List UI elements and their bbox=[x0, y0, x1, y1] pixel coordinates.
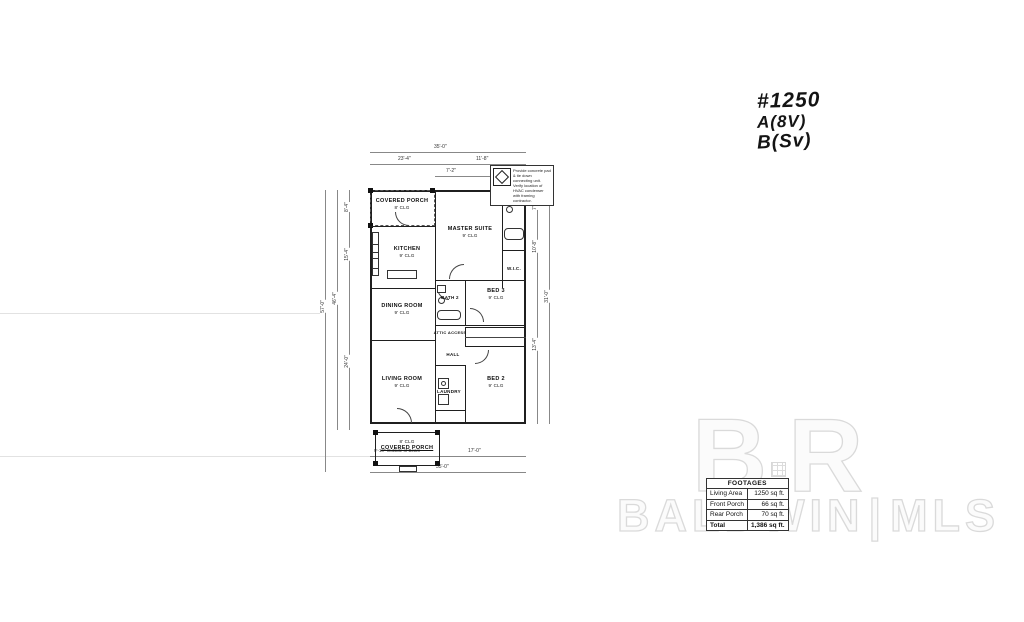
room-label-covered-porch-front: COVERED PORCH 8' CLG bbox=[372, 198, 432, 211]
room-ceiling: 9' CLG bbox=[373, 383, 431, 389]
dim-label: 24'-0" bbox=[344, 355, 351, 368]
dim-label: 46'-4" bbox=[332, 292, 339, 305]
room-name: ATTIC ACCESS bbox=[434, 330, 467, 335]
kitchen-island bbox=[387, 270, 417, 279]
room-label-bath-2: BATH 2 bbox=[436, 295, 464, 301]
porch-post bbox=[373, 430, 378, 435]
kitchen-sink-symbol bbox=[372, 244, 379, 253]
room-label-attic-access: ATTIC ACCESS bbox=[433, 330, 467, 335]
toilet-symbol bbox=[506, 206, 513, 213]
room-name: LIVING ROOM bbox=[382, 376, 422, 382]
room-label-bed-3: BED 3 9' CLG bbox=[472, 288, 520, 301]
room-ceiling: 9' CLG bbox=[472, 295, 520, 301]
room-label-master-suite: MASTER SUITE 9' CLG bbox=[441, 226, 499, 239]
hvac-note-box: Provide concrete pad & tie down connecti… bbox=[490, 165, 554, 206]
footage-value: 1,386 sq ft. bbox=[747, 520, 788, 530]
interior-wall bbox=[435, 280, 526, 281]
room-name: HALL bbox=[446, 352, 459, 357]
room-ceiling: 9' CLG bbox=[473, 383, 519, 389]
scanned-floor-plan-page: #1250 A(8V) B(Sv) 35'-0" 23'-4" 11'-8" 7… bbox=[0, 0, 1024, 622]
scan-artifact-line bbox=[0, 313, 320, 314]
footage-value: 1250 sq ft. bbox=[747, 489, 788, 499]
dimension-line bbox=[370, 472, 526, 473]
interior-wall bbox=[465, 280, 466, 325]
dimension-line bbox=[349, 190, 350, 430]
dim-label: 10'-8" bbox=[532, 240, 539, 253]
room-label-laundry: LAUNDRY bbox=[434, 389, 464, 395]
room-name: BED 2 bbox=[487, 376, 505, 382]
interior-wall bbox=[465, 365, 466, 424]
dimension-line bbox=[549, 190, 550, 424]
dim-label: 7'-2" bbox=[445, 169, 457, 174]
dim-label: 15'-4" bbox=[344, 248, 351, 261]
room-name: KITCHEN bbox=[394, 246, 421, 252]
dim-label: 57'-0" bbox=[320, 300, 327, 313]
footage-label: Rear Porch bbox=[707, 510, 748, 520]
dim-label: 35'-0" bbox=[433, 145, 448, 150]
room-label-wic: W.I.C. bbox=[503, 266, 525, 272]
room-ceiling: 8' CLG bbox=[372, 205, 432, 211]
room-ceiling: 9' CLG bbox=[441, 233, 499, 239]
dim-label: 8'-4" bbox=[344, 202, 351, 212]
interior-wall bbox=[370, 340, 435, 341]
washer-drum-icon bbox=[441, 381, 446, 386]
dim-label: 13'-4" bbox=[532, 338, 539, 351]
room-ceiling: 9' CLG bbox=[383, 253, 431, 259]
plan-note-a: A(8V) bbox=[757, 112, 821, 131]
room-name: BATH 2 bbox=[441, 295, 459, 300]
handwritten-annotation: #1250 A(8V) B(Sv) bbox=[757, 90, 820, 151]
room-name: COVERED PORCH bbox=[381, 445, 434, 451]
table-row: Living Area 1250 sq ft. bbox=[707, 489, 789, 499]
interior-wall bbox=[502, 250, 526, 251]
footage-label: Living Area bbox=[707, 489, 748, 499]
dimension-line bbox=[537, 190, 538, 424]
footage-value: 66 sq ft. bbox=[747, 499, 788, 509]
watermark-wordmark: BALDWIN | MLS bbox=[617, 493, 1000, 538]
interior-wall bbox=[435, 410, 465, 411]
watermark-suffix: MLS bbox=[890, 493, 1000, 538]
interior-wall bbox=[370, 288, 435, 289]
dim-label: 23'-4" bbox=[397, 157, 412, 162]
dim-label: 31'-0" bbox=[544, 290, 551, 303]
footage-label: Total bbox=[707, 520, 748, 530]
range-symbol bbox=[372, 258, 379, 269]
room-label-kitchen: KITCHEN 9' CLG bbox=[383, 246, 431, 259]
porch-post bbox=[435, 461, 440, 466]
interior-wall bbox=[370, 226, 435, 227]
footage-value: 70 sq ft. bbox=[747, 510, 788, 520]
dryer-symbol bbox=[438, 394, 449, 405]
room-label-bed-2: BED 2 9' CLG bbox=[473, 376, 519, 389]
footages-header: FOOTAGES bbox=[707, 479, 789, 489]
room-label-covered-porch-rear: 8' CLG COVERED PORCH bbox=[377, 439, 437, 452]
plan-note-b: B(Sv) bbox=[757, 130, 821, 152]
plan-number: #1250 bbox=[757, 89, 821, 112]
room-label-living-room: LIVING ROOM 9' CLG bbox=[373, 376, 431, 389]
watermark-house-grid-icon bbox=[771, 462, 786, 477]
room-name: DINING ROOM bbox=[381, 303, 422, 309]
dim-label: 11'-8" bbox=[475, 157, 489, 162]
dimension-line bbox=[370, 152, 526, 153]
interior-wall bbox=[435, 365, 465, 366]
room-label-hall: HALL bbox=[443, 352, 463, 358]
footages-table: FOOTAGES Living Area 1250 sq ft. Front P… bbox=[706, 478, 789, 531]
room-name: W.I.C. bbox=[507, 266, 521, 271]
dimension-line bbox=[337, 190, 338, 430]
dimension-line bbox=[325, 190, 326, 472]
porch-post bbox=[373, 461, 378, 466]
floor-plan: 35'-0" 23'-4" 11'-8" 7'-2" 2'-0" 57'-0" … bbox=[315, 140, 615, 490]
interior-wall bbox=[435, 325, 526, 326]
room-name: LAUNDRY bbox=[437, 389, 461, 394]
room-name: BED 3 bbox=[487, 288, 505, 294]
porch-post bbox=[435, 430, 440, 435]
hvac-pad-icon bbox=[493, 168, 511, 186]
watermark-divider: | bbox=[868, 493, 886, 538]
room-name: MASTER SUITE bbox=[448, 226, 493, 232]
kitchen-counter bbox=[372, 232, 379, 276]
bathtub-symbol bbox=[504, 228, 524, 240]
room-ceiling: 9' CLG bbox=[373, 310, 431, 316]
table-row-total: Total 1,386 sq ft. bbox=[707, 520, 789, 530]
vanity-symbol bbox=[437, 285, 446, 293]
room-name: COVERED PORCH bbox=[376, 198, 429, 204]
footage-label: Front Porch bbox=[707, 499, 748, 509]
table-row: Front Porch 66 sq ft. bbox=[707, 499, 789, 509]
room-label-dining-room: DINING ROOM 9' CLG bbox=[373, 303, 431, 316]
bathtub-symbol bbox=[437, 310, 461, 320]
porch-post bbox=[368, 188, 373, 193]
closet-shelf-line bbox=[465, 337, 526, 338]
table-row: Rear Porch 70 sq ft. bbox=[707, 510, 789, 520]
dim-label: 17'-0" bbox=[467, 449, 482, 454]
porch-steps bbox=[399, 466, 417, 472]
hvac-note-text: Provide concrete pad & tie down connecti… bbox=[513, 168, 551, 203]
